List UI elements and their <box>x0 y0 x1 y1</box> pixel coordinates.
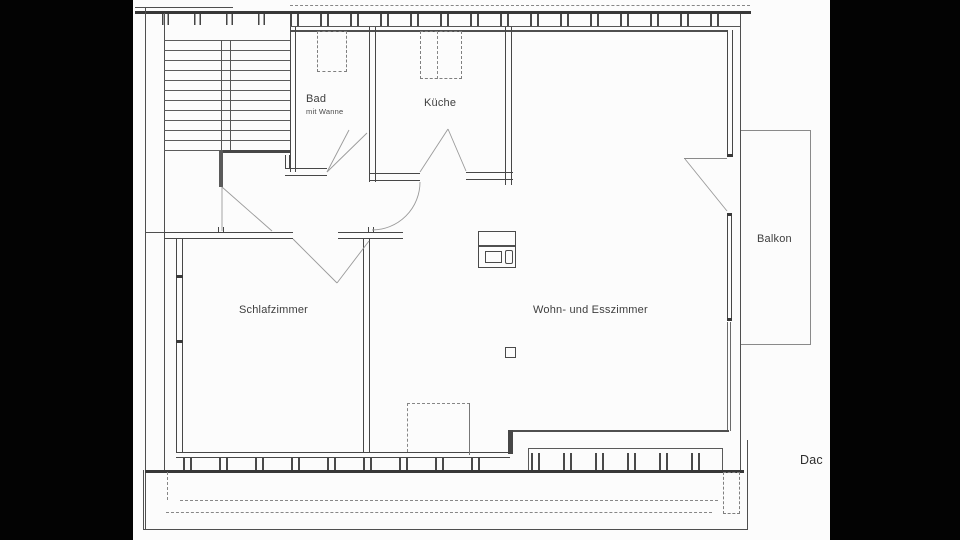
letterbox-left <box>0 0 133 540</box>
floor-plan-photo: Bad mit Wanne Küche Schlafzimmer Wohn- u… <box>0 0 960 540</box>
letterbox-right <box>830 0 960 540</box>
door-swing-lines <box>0 0 960 540</box>
